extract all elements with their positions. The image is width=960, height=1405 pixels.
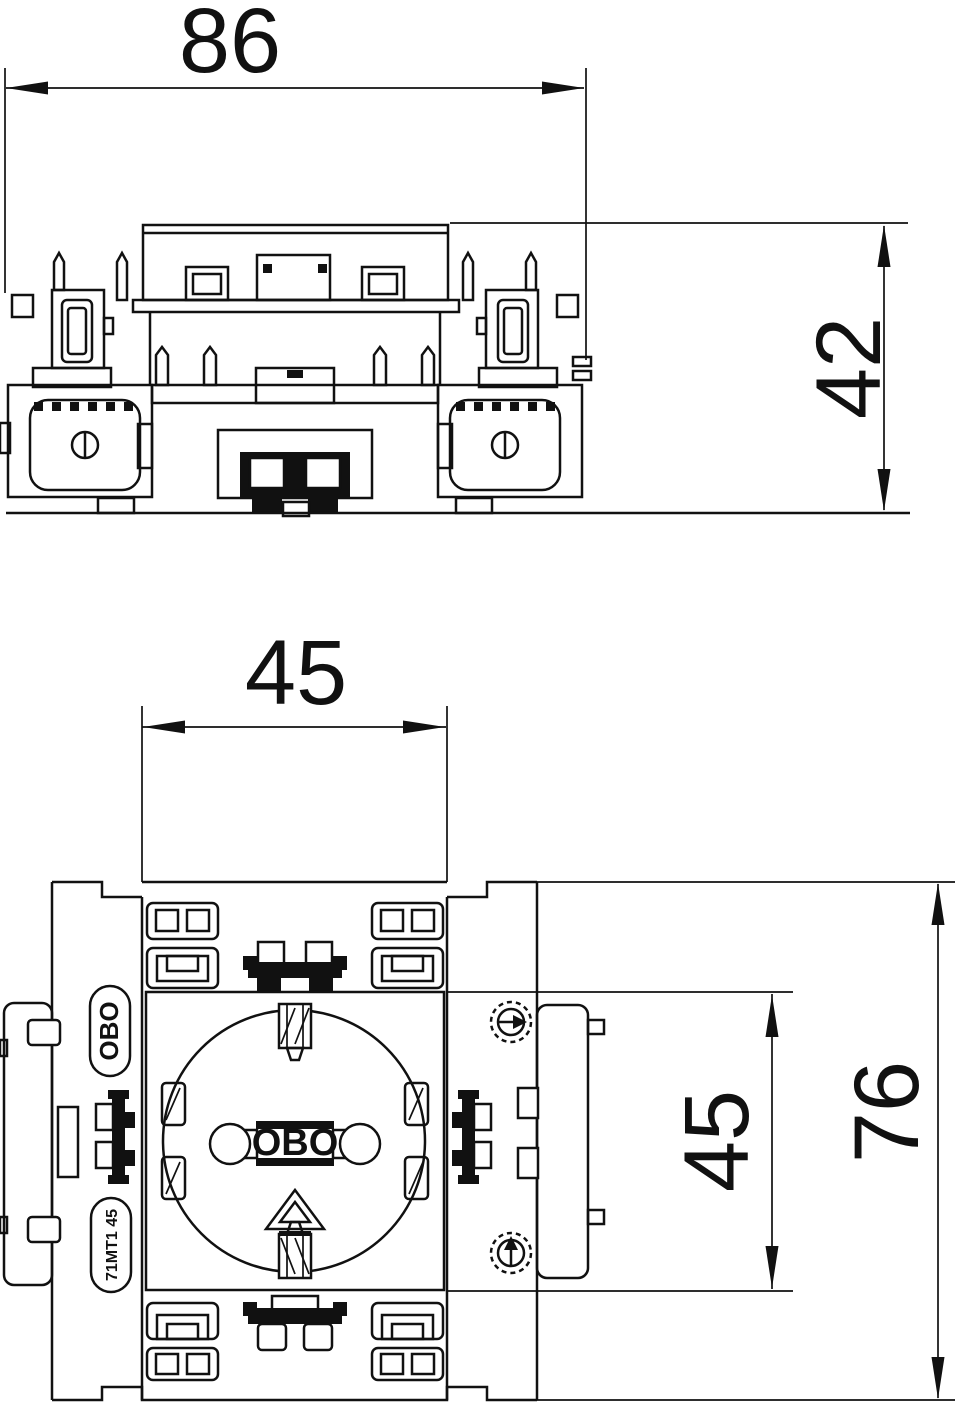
socket-logo: OBO [252,1121,339,1166]
brand-badge: OBO [90,986,130,1076]
screw-bottom-icon [491,1233,531,1273]
dim-module-height-label: 45 [666,1090,768,1192]
technical-drawing: 86 42 [0,0,960,1405]
model-badge-label: 71MT1 45 [104,1209,121,1281]
top-latches [147,903,443,991]
dim-plate-height-label: 76 [836,1061,938,1163]
socket-face: OBO [146,992,444,1290]
approval-triangle-icon [266,1190,324,1236]
model-badge: 71MT1 45 [91,1198,131,1292]
brand-badge-label: OBO [94,1001,124,1060]
left-claw [12,253,113,387]
left-terminal-box [0,385,152,513]
screw-top-icon [491,1002,531,1042]
dim-side-height-label: 42 [798,317,900,419]
right-wing [518,1005,604,1278]
dim-top-width-label: 86 [179,0,281,92]
center-mechanism [150,312,440,516]
dimension-module-width: 45 [142,622,447,882]
pin-hole-left [210,1124,257,1164]
right-terminal-box [438,357,591,513]
earth-contact-top [279,1004,311,1060]
pin-hole-right [333,1124,380,1164]
left-wing [0,1003,78,1285]
right-claw [477,253,578,387]
front-view: 45 [0,622,955,1400]
side-view: 86 42 [0,0,910,516]
left-clip [96,1090,135,1184]
earth-contact-bottom [279,1222,311,1278]
dim-module-width-label: 45 [245,622,347,724]
bottom-latches [147,1296,443,1380]
socket-logo-label: OBO [252,1122,339,1164]
right-clip [452,1090,491,1184]
module-housing [117,225,473,312]
